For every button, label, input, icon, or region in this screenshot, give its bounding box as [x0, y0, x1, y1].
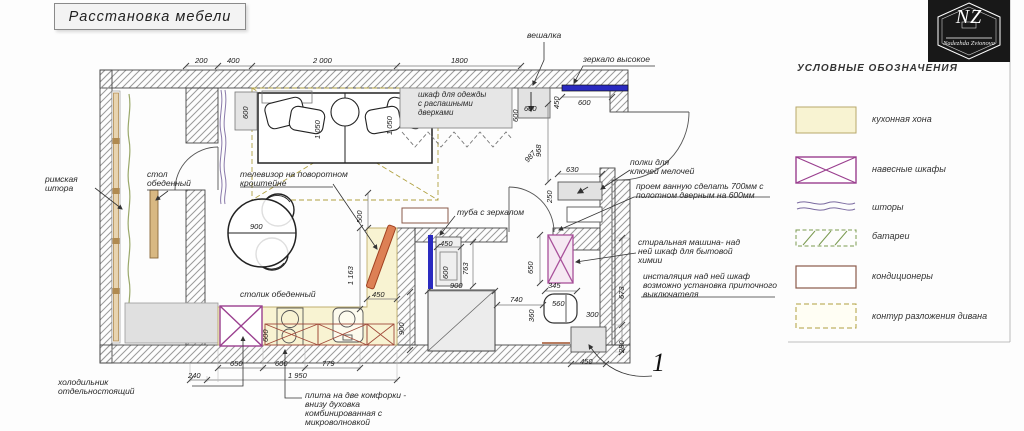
legend-label: кухонная хона	[872, 114, 932, 124]
dim: 450	[552, 96, 561, 109]
washing-machine	[548, 235, 573, 283]
dim: 1 950	[288, 371, 307, 380]
logo-name: Nadezhda Zvionova	[928, 40, 1010, 47]
dim: 560	[552, 299, 565, 308]
title-box: Расстановка мебели	[54, 3, 246, 30]
dim: 900	[250, 222, 263, 231]
legend-label: контур разложения дивана	[872, 311, 987, 321]
dim: 900	[450, 281, 463, 290]
dim: 250	[545, 190, 554, 203]
dim: 600	[275, 359, 288, 368]
dim: 600	[578, 98, 591, 107]
tall-mirror	[562, 85, 628, 91]
label-shelves: ключей мелочей	[630, 166, 694, 176]
air-conditioner	[402, 208, 448, 223]
dim: 360	[527, 309, 536, 322]
dim: 200	[195, 56, 208, 65]
hanger-box	[518, 88, 550, 118]
key-shelves	[558, 182, 602, 222]
label-washer: химии	[638, 255, 662, 265]
balcony-cabinet	[125, 303, 218, 343]
dim: 673	[617, 286, 626, 299]
legend-header: УСЛОВНЫЕ ОБОЗНАЧЕНИЯ	[797, 63, 958, 74]
label-tv: кроштейне	[240, 178, 286, 188]
label-tall-mirror: зеркало высокое	[583, 54, 650, 64]
dim: 600	[441, 266, 450, 279]
window-table	[150, 190, 158, 258]
sheet: Расстановка мебели NZ Nadezhda Zvionova …	[0, 0, 1024, 431]
label-vanity: туба с зеркалом	[457, 207, 524, 217]
dim: 650	[230, 359, 243, 368]
dim: 1 050	[385, 116, 394, 135]
logo-monogram: NZ	[928, 6, 1010, 29]
dim: 779	[322, 359, 335, 368]
dim: 600	[524, 104, 537, 113]
dim: 1800	[451, 56, 468, 65]
label-wardrobe: с распашными	[418, 99, 473, 108]
dim: 500	[355, 210, 364, 223]
plan-curtains	[220, 90, 226, 204]
label-hanger: вешалка	[527, 30, 561, 40]
dim: 1 050	[313, 120, 322, 139]
dim: 1 163	[346, 266, 355, 285]
label-fridge: отдельностоящий	[58, 386, 135, 396]
legend-label: навесные шкафы	[872, 164, 946, 174]
dim: 600	[241, 106, 250, 119]
dim: 600	[511, 109, 520, 122]
dim: 763	[461, 262, 470, 275]
dim: 630	[566, 165, 579, 174]
fridge-cabinet	[220, 306, 262, 346]
window-wall	[112, 91, 120, 343]
label-installation: выключателя	[643, 289, 699, 299]
dim: 300	[586, 310, 599, 319]
dim: 450	[372, 290, 385, 299]
label-wardrobe: дверками	[418, 108, 453, 117]
installation-cabinet	[571, 327, 606, 352]
dim: 345	[548, 281, 561, 290]
page-title: Расстановка мебели	[69, 9, 232, 25]
legend-label: шторы	[872, 202, 904, 212]
dim: 450	[440, 239, 453, 248]
dim: 240	[188, 371, 201, 380]
label-window-table: обеденный	[147, 178, 191, 188]
label-wardrobe: шкаф для одежды	[418, 90, 486, 99]
dim: 2 000	[313, 56, 332, 65]
legend-label: кондиционеры	[872, 271, 933, 281]
shower	[428, 290, 495, 351]
label-round-table: столик обеденный	[240, 289, 316, 299]
sheet-number: 1	[652, 348, 665, 378]
dim: 600	[261, 329, 270, 342]
logo: NZ Nadezhda Zvionova	[928, 0, 1010, 62]
dim: 650	[526, 261, 535, 274]
label-stove: микроволновкой	[305, 417, 370, 427]
dim: 450	[580, 357, 593, 366]
dim: 740	[510, 295, 523, 304]
dim: 400	[227, 56, 240, 65]
label-roman-blind: штора	[45, 183, 73, 193]
dim: 900	[397, 322, 406, 335]
legend-label: батареи	[872, 231, 910, 241]
dim: 280	[617, 340, 626, 353]
vanity-mirror	[428, 235, 433, 289]
round-table	[228, 194, 296, 270]
label-opening: полотном дверным на 600мм	[636, 190, 755, 200]
